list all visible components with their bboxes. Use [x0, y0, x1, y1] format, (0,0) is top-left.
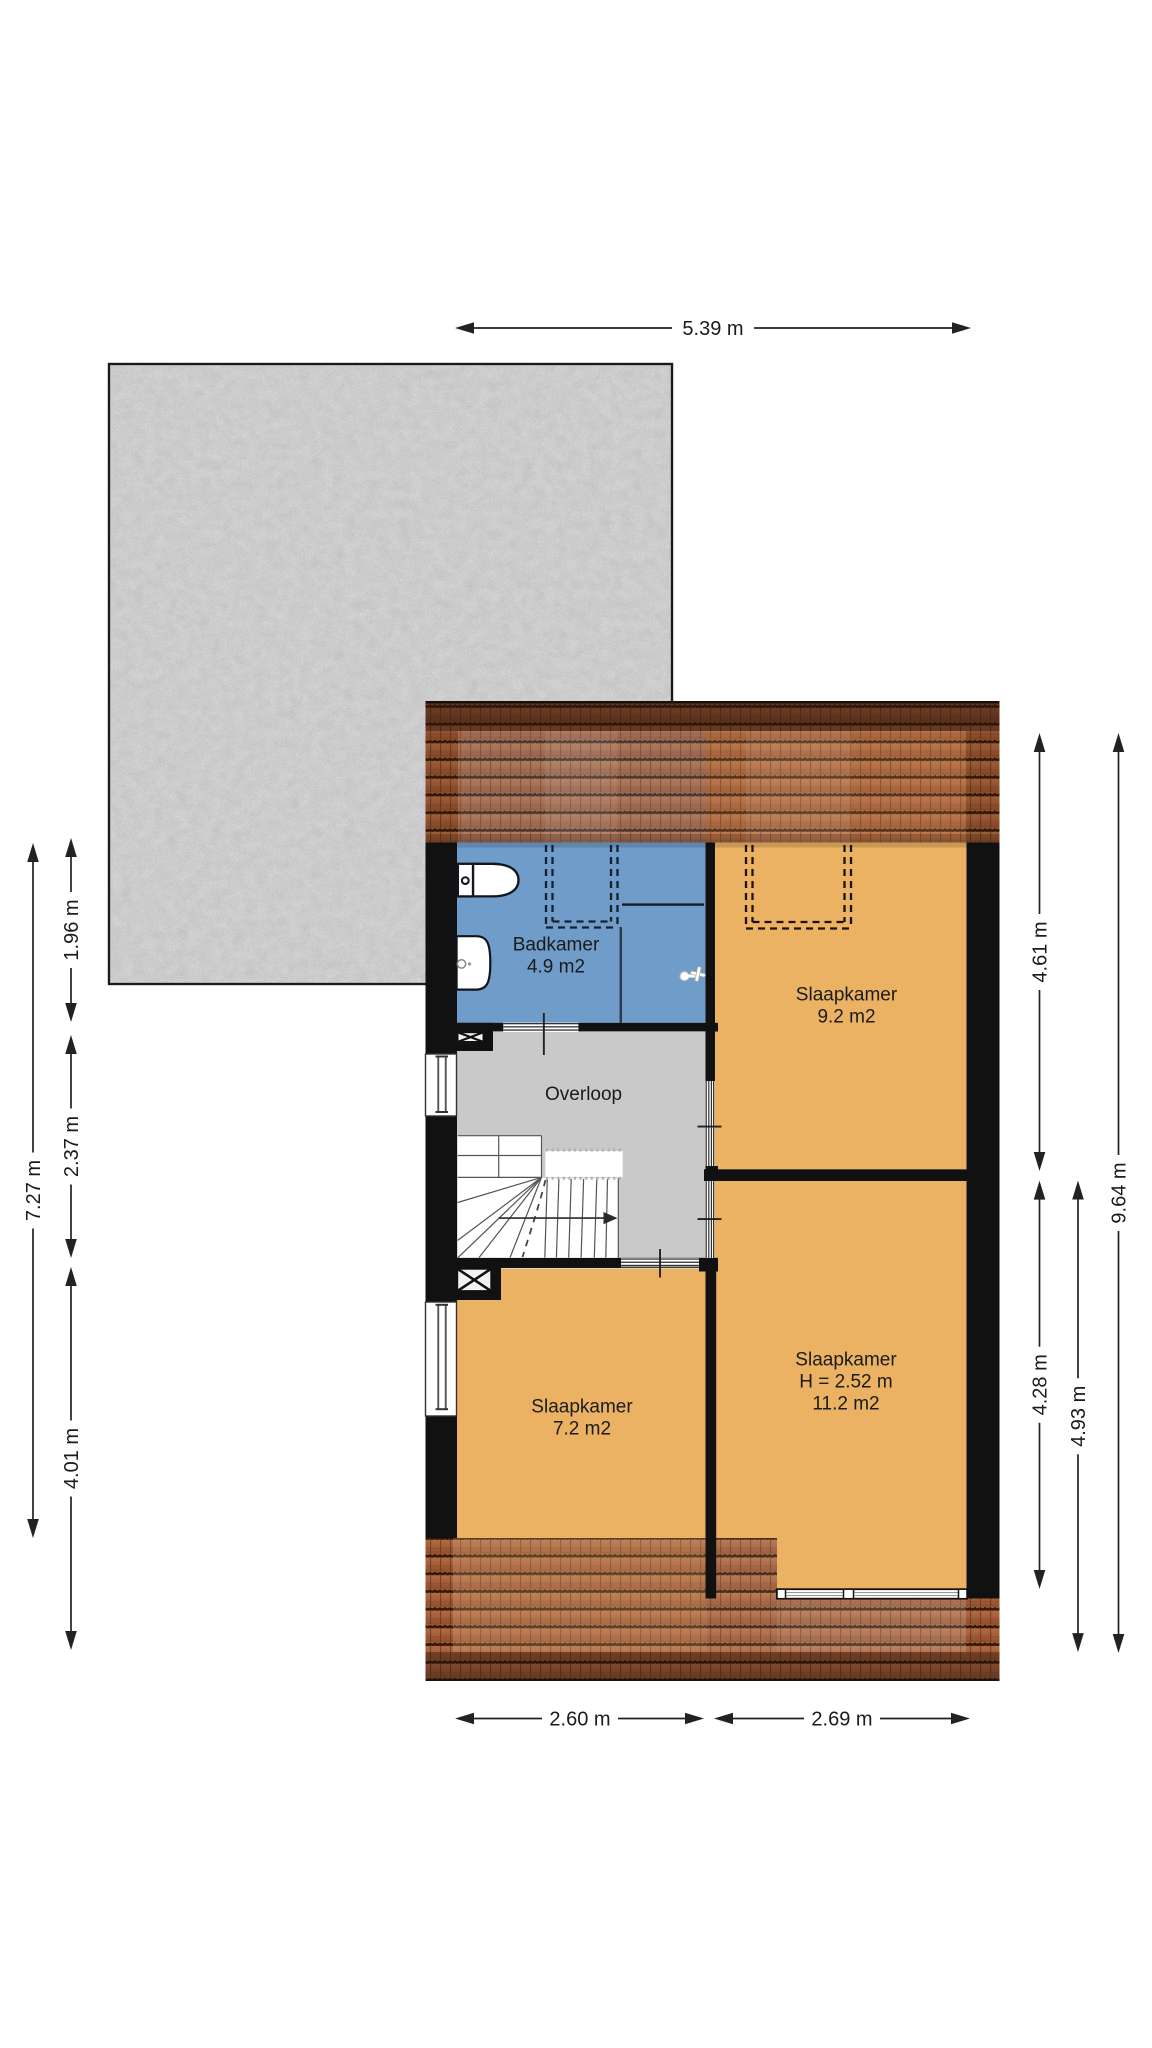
svg-text:9.2 m2: 9.2 m2	[817, 1007, 875, 1028]
svg-text:2.37 m: 2.37 m	[61, 1116, 83, 1177]
svg-text:5.39 m: 5.39 m	[682, 318, 743, 340]
svg-text:7.2 m2: 7.2 m2	[553, 1419, 611, 1440]
svg-text:7.27 m: 7.27 m	[23, 1160, 45, 1221]
svg-text:1.96 m: 1.96 m	[61, 899, 83, 960]
svg-text:11.2 m2: 11.2 m2	[812, 1394, 879, 1415]
svg-text:4.9 m2: 4.9 m2	[527, 957, 585, 978]
svg-text:4.28 m: 4.28 m	[1030, 1354, 1052, 1415]
svg-text:4.61 m: 4.61 m	[1030, 921, 1052, 982]
svg-text:2.69 m: 2.69 m	[811, 1709, 872, 1731]
svg-text:Slaapkamer: Slaapkamer	[796, 985, 898, 1006]
svg-text:4.93 m: 4.93 m	[1068, 1386, 1090, 1447]
svg-text:2.60 m: 2.60 m	[549, 1709, 610, 1731]
svg-text:Overloop: Overloop	[545, 1084, 622, 1105]
svg-text:4.01 m: 4.01 m	[61, 1428, 83, 1489]
svg-text:H = 2.52 m: H = 2.52 m	[799, 1372, 892, 1393]
svg-text:Slaapkamer: Slaapkamer	[795, 1350, 897, 1371]
svg-text:Badkamer: Badkamer	[513, 935, 600, 956]
svg-text:9.64 m: 9.64 m	[1109, 1162, 1131, 1223]
svg-text:Slaapkamer: Slaapkamer	[531, 1397, 633, 1418]
